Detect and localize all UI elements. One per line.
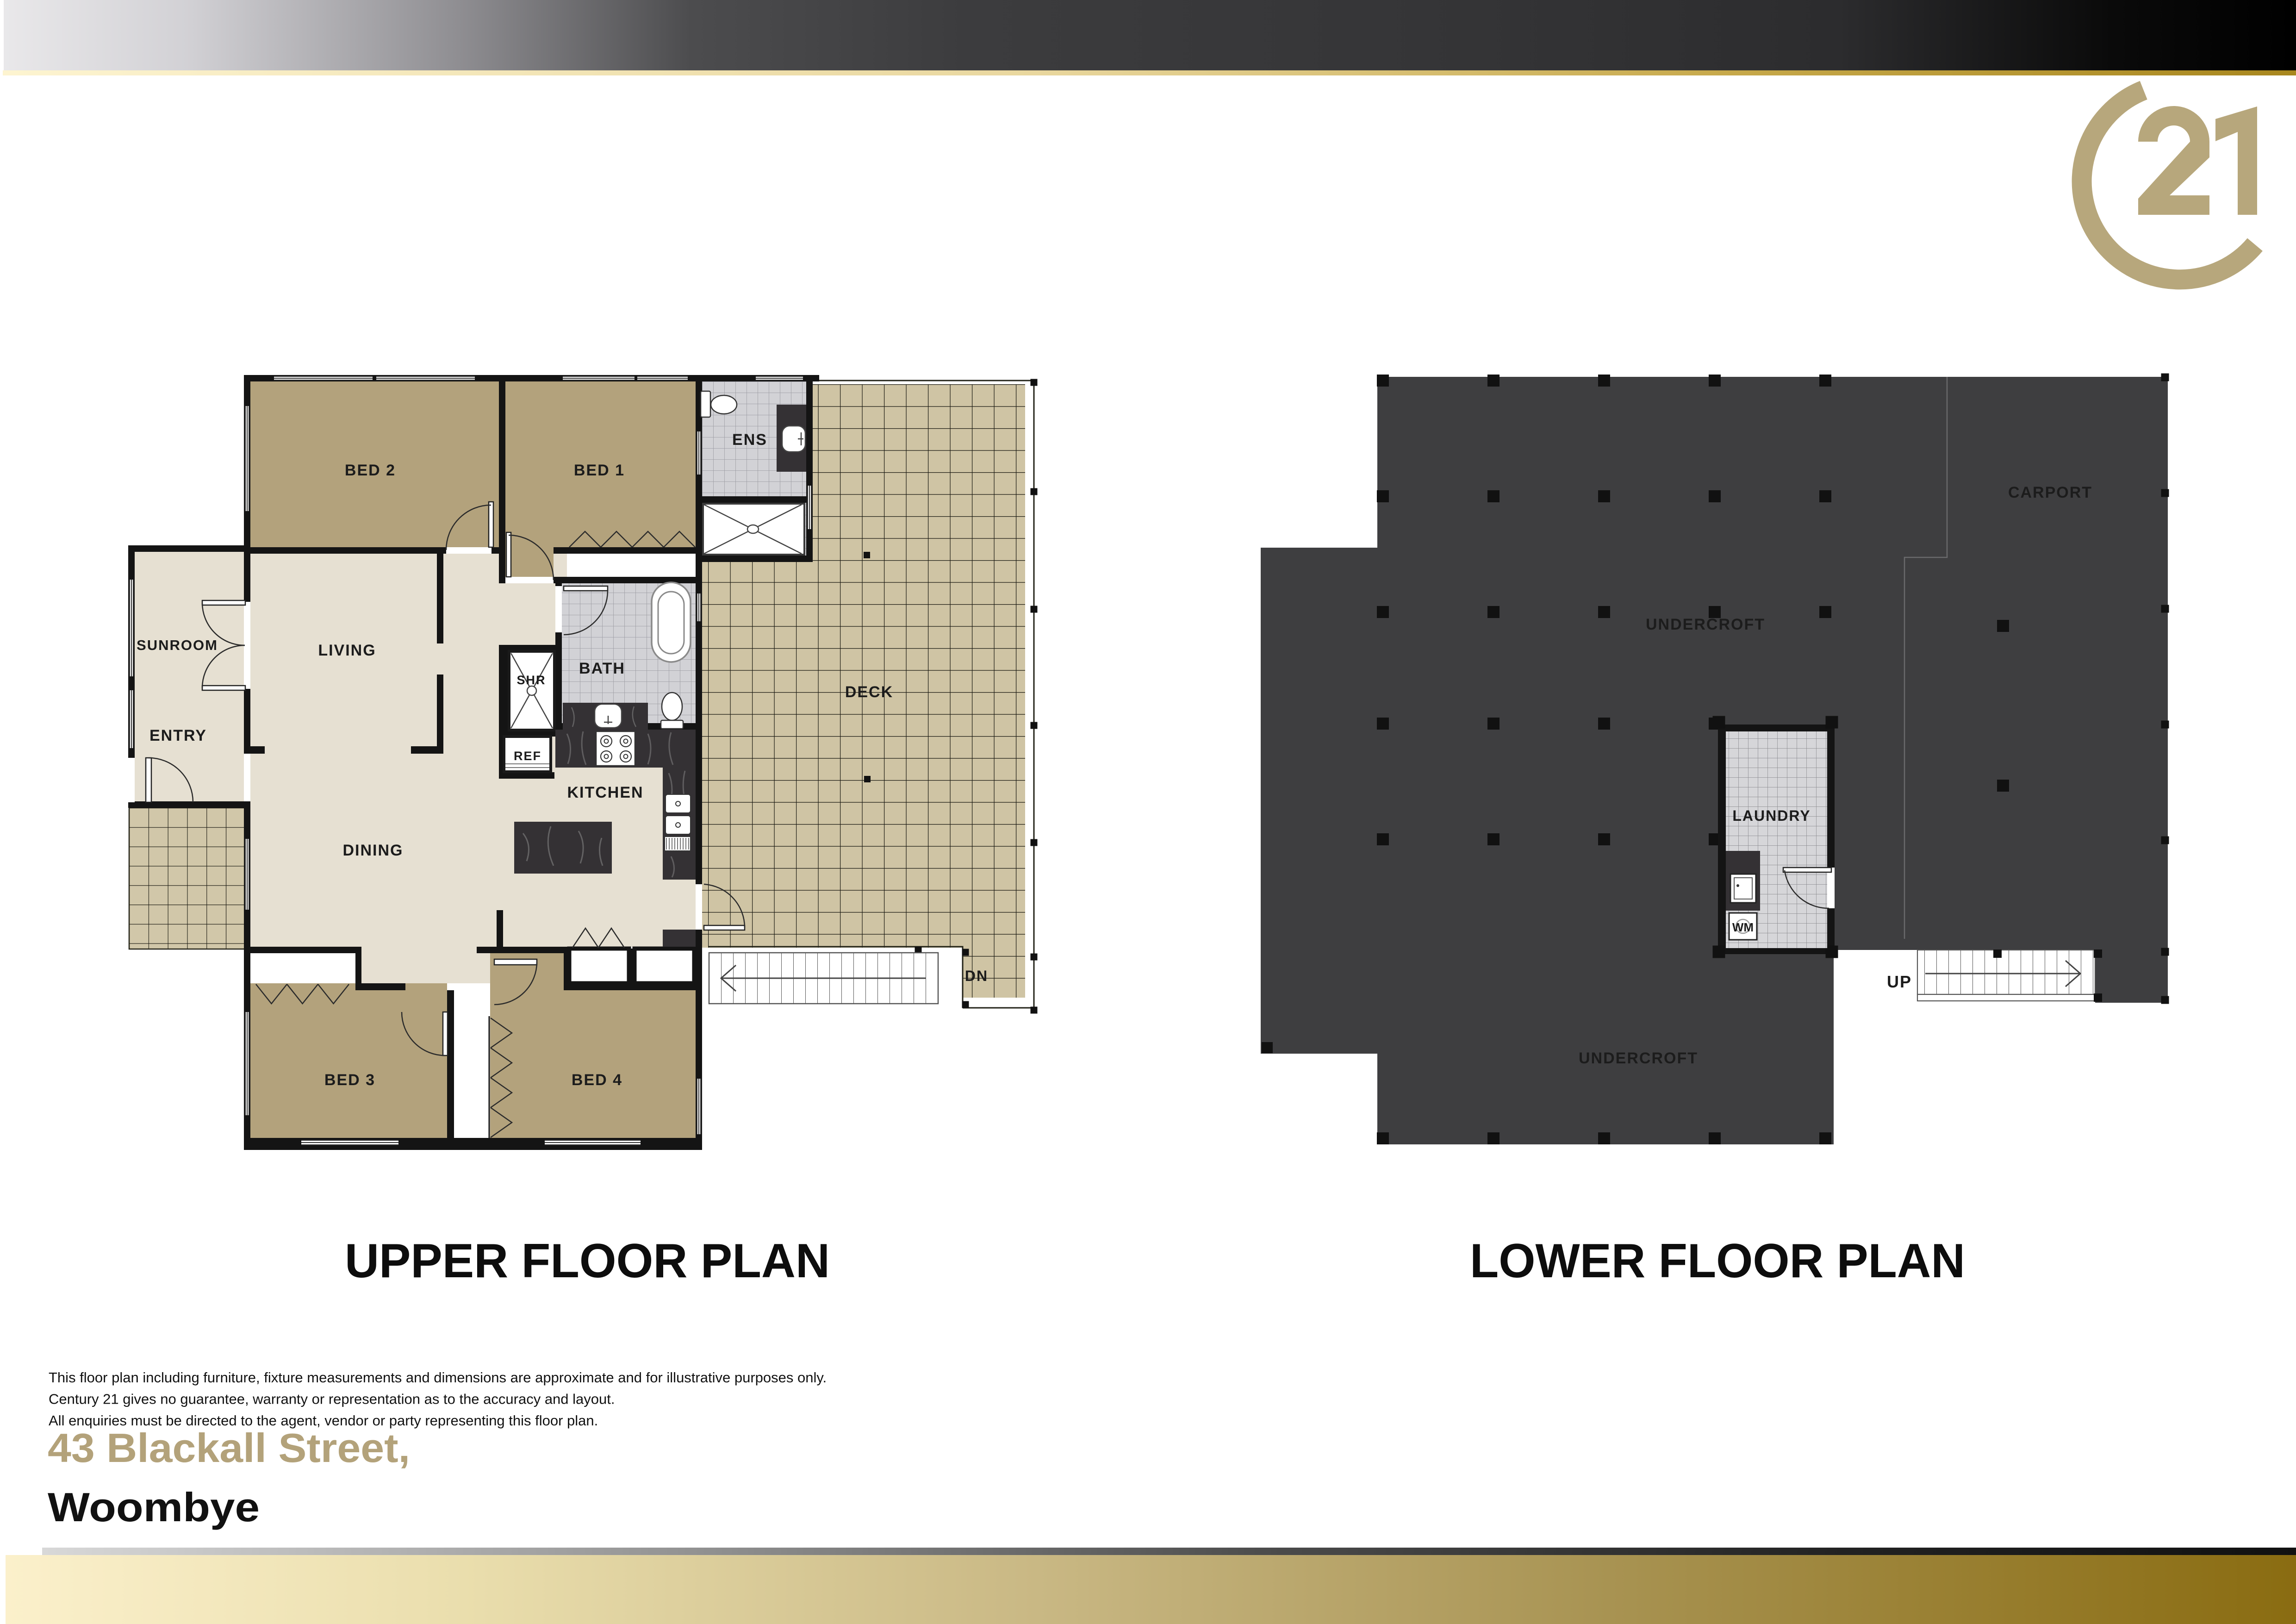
svg-text:LAUNDRY: LAUNDRY	[1732, 807, 1811, 824]
svg-text:BED 2: BED 2	[345, 462, 396, 479]
svg-text:CARPORT: CARPORT	[2008, 484, 2092, 501]
svg-text:SHR: SHR	[516, 673, 546, 687]
svg-text:UNDERCROFT: UNDERCROFT	[1646, 616, 1765, 633]
svg-text:BED 3: BED 3	[324, 1071, 375, 1089]
svg-text:UPPER FLOOR PLAN: UPPER FLOOR PLAN	[345, 1234, 830, 1288]
svg-text:DECK: DECK	[845, 683, 893, 701]
svg-text:This floor plan including furn: This floor plan including furniture, fix…	[49, 1369, 827, 1386]
svg-text:Century 21 gives no guarantee,: Century 21 gives no guarantee, warranty …	[49, 1391, 615, 1407]
svg-text:LIVING: LIVING	[318, 642, 376, 659]
svg-text:ENTRY: ENTRY	[149, 727, 207, 744]
svg-text:BED 1: BED 1	[574, 462, 625, 479]
svg-text:KITCHEN: KITCHEN	[567, 784, 643, 801]
svg-text:REF: REF	[514, 749, 541, 763]
svg-text:ENS: ENS	[732, 431, 767, 449]
svg-text:Woombye: Woombye	[48, 1484, 260, 1530]
svg-text:WM: WM	[1732, 920, 1754, 934]
svg-text:BED 4: BED 4	[572, 1071, 622, 1089]
svg-text:UNDERCROFT: UNDERCROFT	[1579, 1049, 1698, 1067]
svg-text:SUNROOM: SUNROOM	[137, 637, 218, 653]
svg-text:DN: DN	[965, 968, 988, 984]
svg-text:43 Blackall Street,: 43 Blackall Street,	[48, 1425, 410, 1471]
svg-text:UP: UP	[1887, 972, 1912, 991]
svg-text:BATH: BATH	[579, 660, 625, 677]
svg-text:DINING: DINING	[343, 842, 404, 859]
svg-text:LOWER FLOOR PLAN: LOWER FLOOR PLAN	[1470, 1234, 1965, 1288]
